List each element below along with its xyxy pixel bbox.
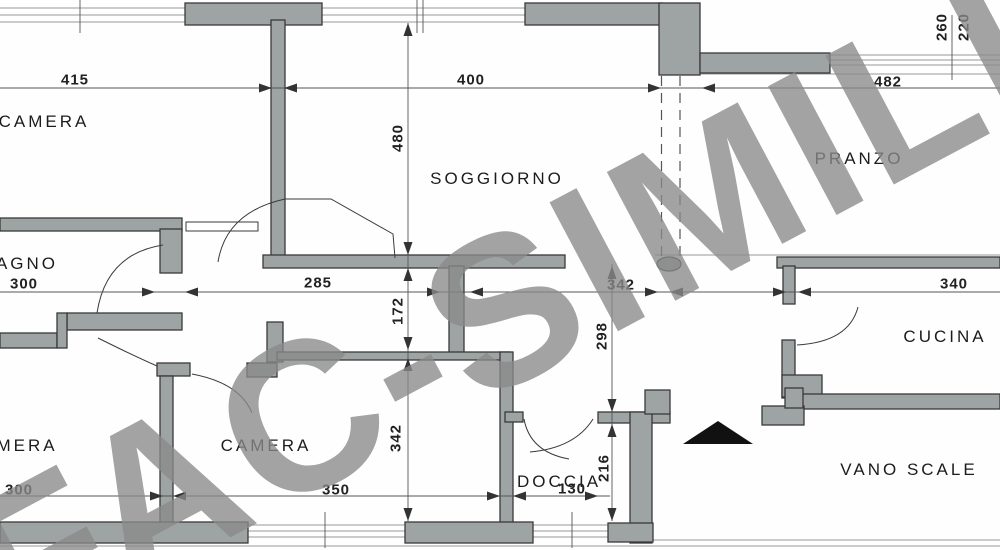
column-marker bbox=[657, 257, 681, 271]
room-label-soggiorno: SOGGIORNO bbox=[430, 169, 564, 189]
room-label-camera-bottom: CAMERA bbox=[221, 436, 312, 456]
dashed-partition bbox=[662, 76, 681, 256]
dim-pranzo-depth: 298 bbox=[594, 322, 611, 350]
room-label-camera-top: CAMERA bbox=[0, 112, 89, 132]
room-label-camera-left: MERA bbox=[0, 436, 58, 456]
dim-camera-left-width: 300 bbox=[5, 482, 33, 499]
door-arcs bbox=[97, 199, 858, 459]
dim-top-soggiorno: 400 bbox=[457, 72, 485, 89]
room-label-pranzo: PRANZO bbox=[815, 149, 904, 169]
dim-right-outer: 260 bbox=[934, 13, 951, 41]
dim-hall-left: 285 bbox=[304, 275, 332, 292]
north-arrow-icon bbox=[683, 421, 753, 444]
dim-camera-width: 350 bbox=[322, 482, 350, 499]
dim-camera-depth: 342 bbox=[388, 424, 405, 452]
dim-corridor-width: 172 bbox=[390, 297, 407, 325]
room-label-vano-scale: VANO SCALE bbox=[840, 460, 977, 480]
dim-doccia-width: 130 bbox=[558, 481, 586, 498]
dim-soggiorno-depth: 480 bbox=[390, 124, 407, 152]
dim-right-inner: 220 bbox=[956, 13, 973, 41]
dim-bagno-width: 300 bbox=[10, 276, 38, 293]
dim-top-camera: 415 bbox=[61, 72, 89, 89]
dim-cucina-width: 340 bbox=[940, 276, 968, 293]
room-label-cucina: CUCINA bbox=[903, 327, 986, 347]
room-label-bagno: AGNO bbox=[0, 254, 58, 274]
floor-plan: CAMERA SOGGIORNO PRANZO AGNO CUCINA MERA… bbox=[0, 0, 1000, 550]
dim-hall-right: 342 bbox=[607, 277, 635, 294]
dim-top-pranzo: 482 bbox=[874, 74, 902, 91]
dim-doccia-depth: 216 bbox=[596, 454, 613, 482]
